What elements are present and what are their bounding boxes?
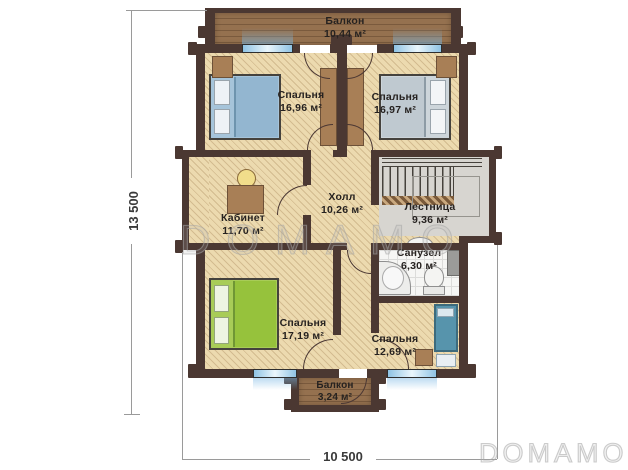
room-label-hall: Холл 10,26 м² <box>308 190 376 218</box>
room-name: Холл <box>328 191 355 204</box>
toilet-tank <box>423 286 445 295</box>
pillow <box>437 308 454 317</box>
dimension-extension <box>182 252 183 459</box>
wall <box>196 44 205 157</box>
room-label-balcony-top: Балкон 10,44 м² <box>303 14 387 42</box>
log-end <box>467 364 476 378</box>
log-end <box>378 373 386 384</box>
room-label-bedroom-top-right: Спальня 16,97 м² <box>358 90 432 118</box>
window-glow <box>387 378 437 390</box>
dimension-height: 13 500 <box>126 178 142 244</box>
wall <box>196 150 303 157</box>
room-name: Спальня <box>372 91 419 104</box>
room-area: 3,24 м² <box>318 392 352 404</box>
log-end <box>454 26 463 38</box>
room-label-bedroom-bottom-left: Спальня 17,19 м² <box>266 316 340 344</box>
room-name: Балкон <box>325 15 364 28</box>
pillow <box>430 80 446 105</box>
room-area: 16,96 м² <box>280 102 322 115</box>
room-name: Спальня <box>278 89 325 102</box>
room-area: 16,97 м² <box>374 104 416 117</box>
pillow <box>214 80 230 105</box>
dimension-width: 10 500 <box>310 449 376 465</box>
room-name: Лестница <box>405 201 456 214</box>
window <box>393 44 442 53</box>
room-label-balcony-bottom: Балкон 3,24 м² <box>300 379 370 405</box>
wardrobe <box>212 56 233 78</box>
watermark-bottom-right: DOMAMO <box>479 438 628 469</box>
pillow <box>214 285 229 312</box>
room-area: 10,44 м² <box>324 28 366 41</box>
wall <box>196 246 205 378</box>
log-end <box>188 364 197 378</box>
wall <box>489 150 496 243</box>
wall <box>371 296 468 303</box>
wall <box>205 8 461 13</box>
wardrobe <box>436 56 457 78</box>
bed-bottom-right <box>434 304 458 352</box>
nightstand <box>436 354 456 367</box>
window-glow <box>253 378 297 390</box>
log-end <box>494 232 502 245</box>
wall <box>459 150 496 157</box>
log-end <box>188 42 197 55</box>
wall <box>291 405 379 412</box>
pillow <box>214 109 230 134</box>
window <box>387 369 437 378</box>
desk <box>227 185 264 214</box>
wall <box>337 44 347 157</box>
room-area: 12,69 м² <box>374 346 416 359</box>
window <box>253 369 297 378</box>
window-glow <box>393 28 442 44</box>
dimension-extension <box>126 10 207 11</box>
room-area: 17,19 м² <box>282 330 324 343</box>
wall <box>371 303 379 333</box>
log-end <box>378 399 386 410</box>
dimension-extension <box>497 245 498 459</box>
log-end <box>494 146 502 159</box>
room-name: Спальня <box>280 317 327 330</box>
room-label-bedroom-bottom-right: Спальня 12,69 м² <box>358 332 432 360</box>
log-end <box>467 42 476 55</box>
pillow <box>214 317 229 344</box>
window-glow <box>242 28 293 44</box>
wall <box>377 150 459 157</box>
log-end <box>284 399 292 410</box>
room-area: 10,26 м² <box>321 204 363 217</box>
watermark-center: DOMAMO <box>180 216 470 264</box>
wall <box>303 150 311 185</box>
window <box>242 44 293 53</box>
dimension-extension <box>124 414 140 415</box>
wall <box>459 44 468 157</box>
room-label-bedroom-top-left: Спальня 16,96 м² <box>266 88 336 116</box>
pillow <box>430 109 446 134</box>
floor-plan: Балкон 10,44 м² Спальня 16,96 м² Спальня… <box>0 0 628 470</box>
log-end <box>175 146 183 159</box>
room-name: Балкон <box>316 380 353 392</box>
room-name: Спальня <box>372 333 419 346</box>
log-end <box>198 26 207 38</box>
